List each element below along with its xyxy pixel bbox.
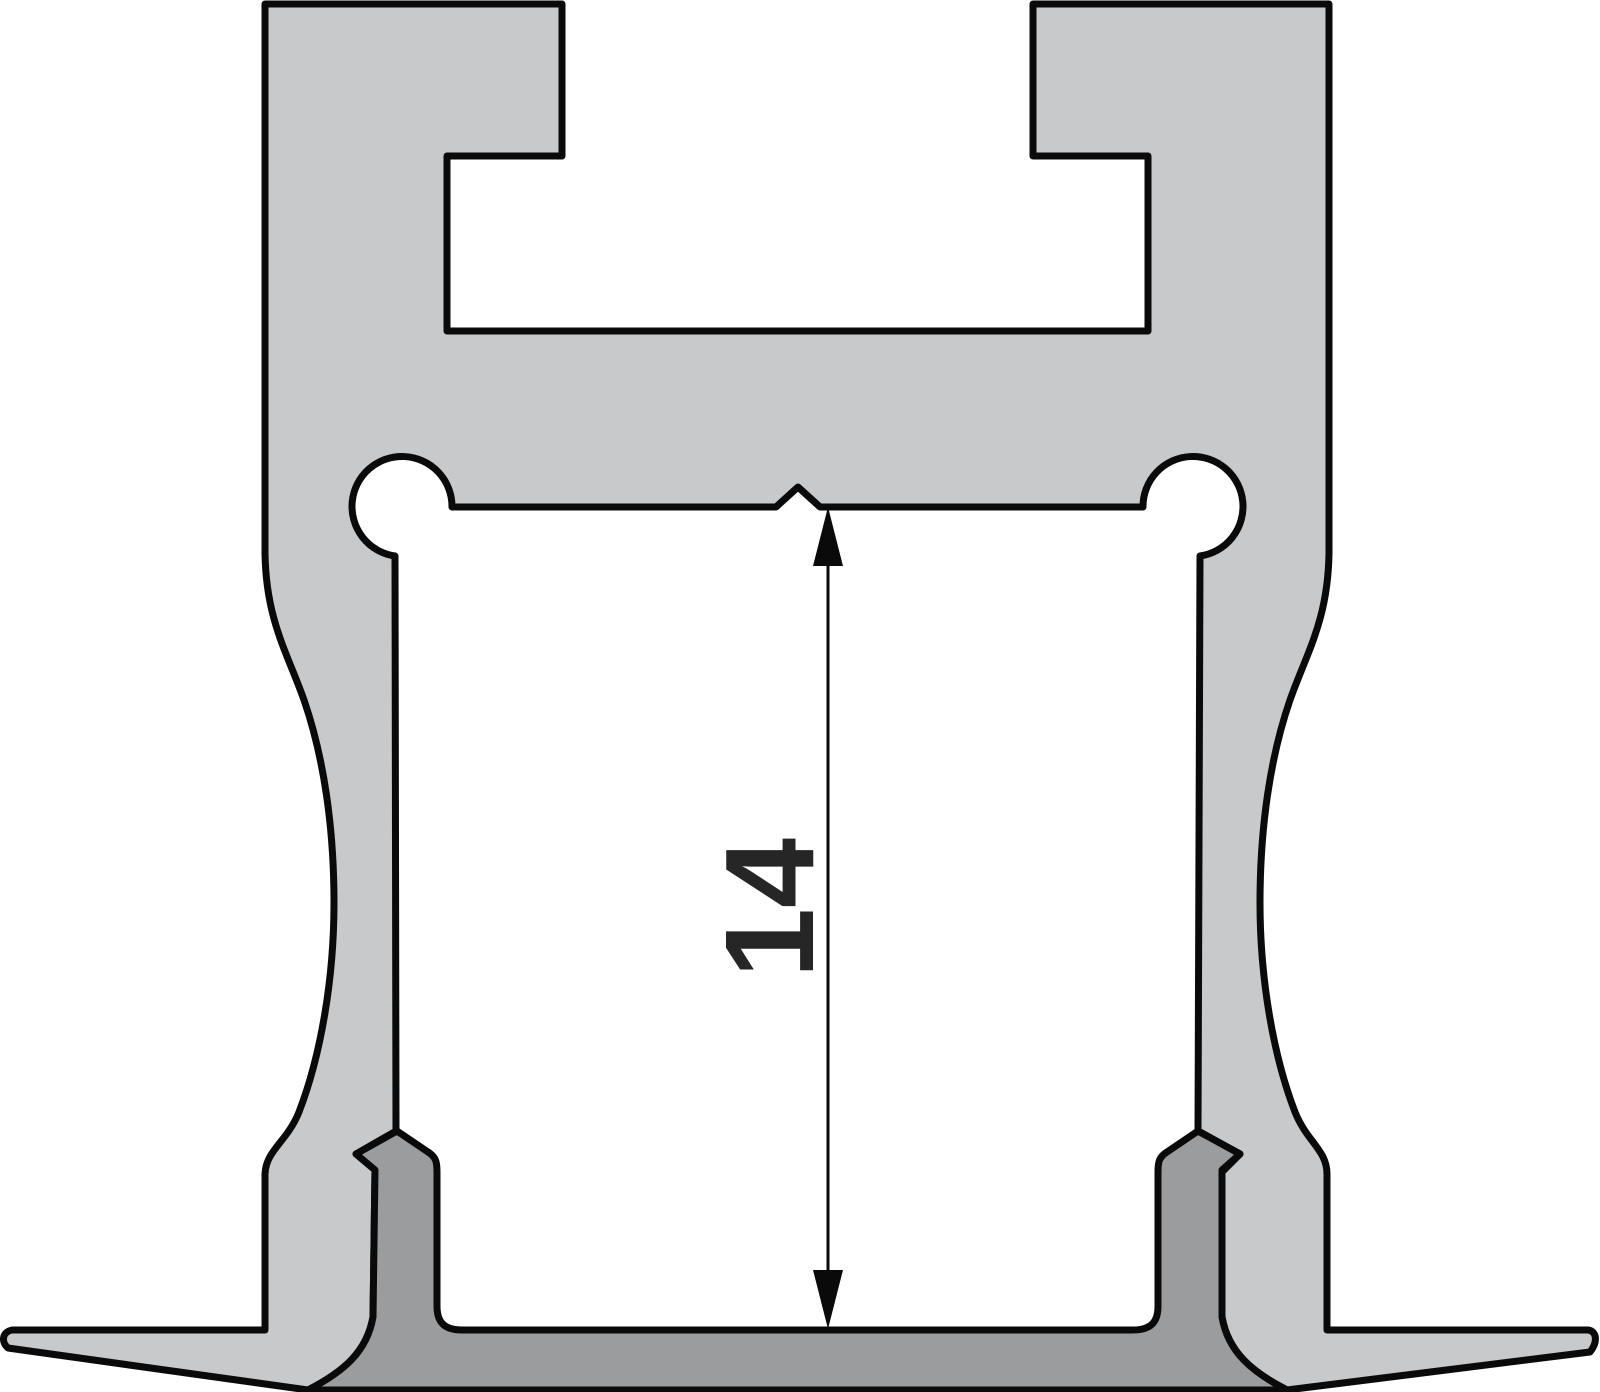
profile-cross-section-drawing: 14 (0, 0, 1600, 1392)
profile-body-shape (3, 4, 1595, 1390)
cover-plate-shape (308, 1131, 1287, 1390)
dimension-label: 14 (699, 838, 840, 978)
drawing-canvas: 14 (0, 0, 1600, 1392)
dimension-arrowhead-up (813, 507, 843, 566)
dimension-arrowhead-down (813, 1270, 843, 1329)
